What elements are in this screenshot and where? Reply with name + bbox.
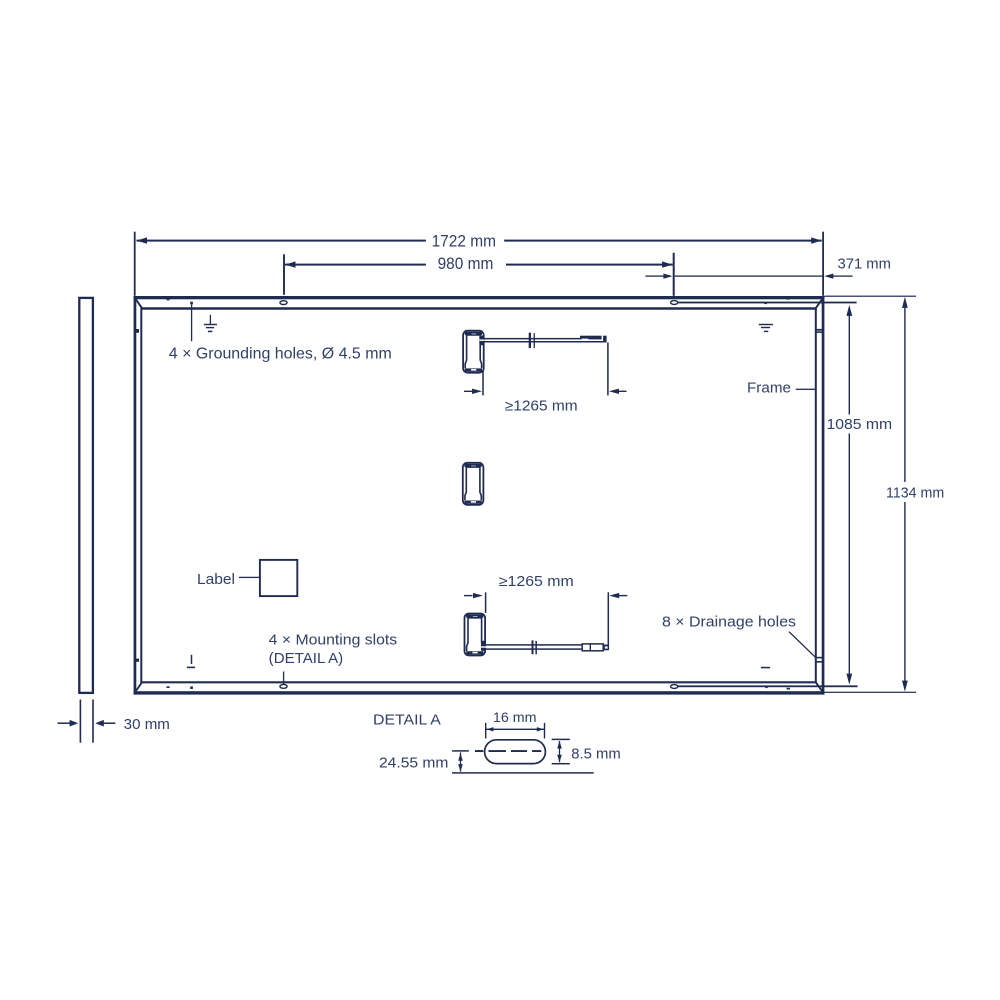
svg-text:DETAIL A: DETAIL A	[373, 712, 441, 729]
svg-text:4 × Grounding holes, Ø 4.5 mm: 4 × Grounding holes, Ø 4.5 mm	[169, 346, 392, 363]
svg-text:8.5 mm: 8.5 mm	[571, 745, 620, 762]
svg-text:1085 mm: 1085 mm	[827, 416, 893, 433]
svg-text:≥1265 mm: ≥1265 mm	[499, 574, 574, 590]
svg-text:16 mm: 16 mm	[493, 710, 537, 725]
svg-text:30 mm: 30 mm	[124, 716, 170, 733]
svg-text:24.55 mm: 24.55 mm	[379, 754, 448, 771]
svg-text:1722 mm: 1722 mm	[432, 232, 496, 250]
svg-text:8 × Drainage holes: 8 × Drainage holes	[662, 613, 796, 630]
svg-text:Frame: Frame	[747, 380, 791, 397]
svg-text:980 mm: 980 mm	[438, 255, 494, 273]
svg-text:4 × Mounting slots: 4 × Mounting slots	[269, 632, 398, 649]
svg-text:1134 mm: 1134 mm	[886, 484, 944, 501]
svg-text:Label: Label	[197, 571, 235, 588]
svg-text:≥1265 mm: ≥1265 mm	[505, 398, 578, 414]
svg-text:371 mm: 371 mm	[838, 257, 891, 273]
svg-text:(DETAIL A): (DETAIL A)	[269, 650, 344, 667]
